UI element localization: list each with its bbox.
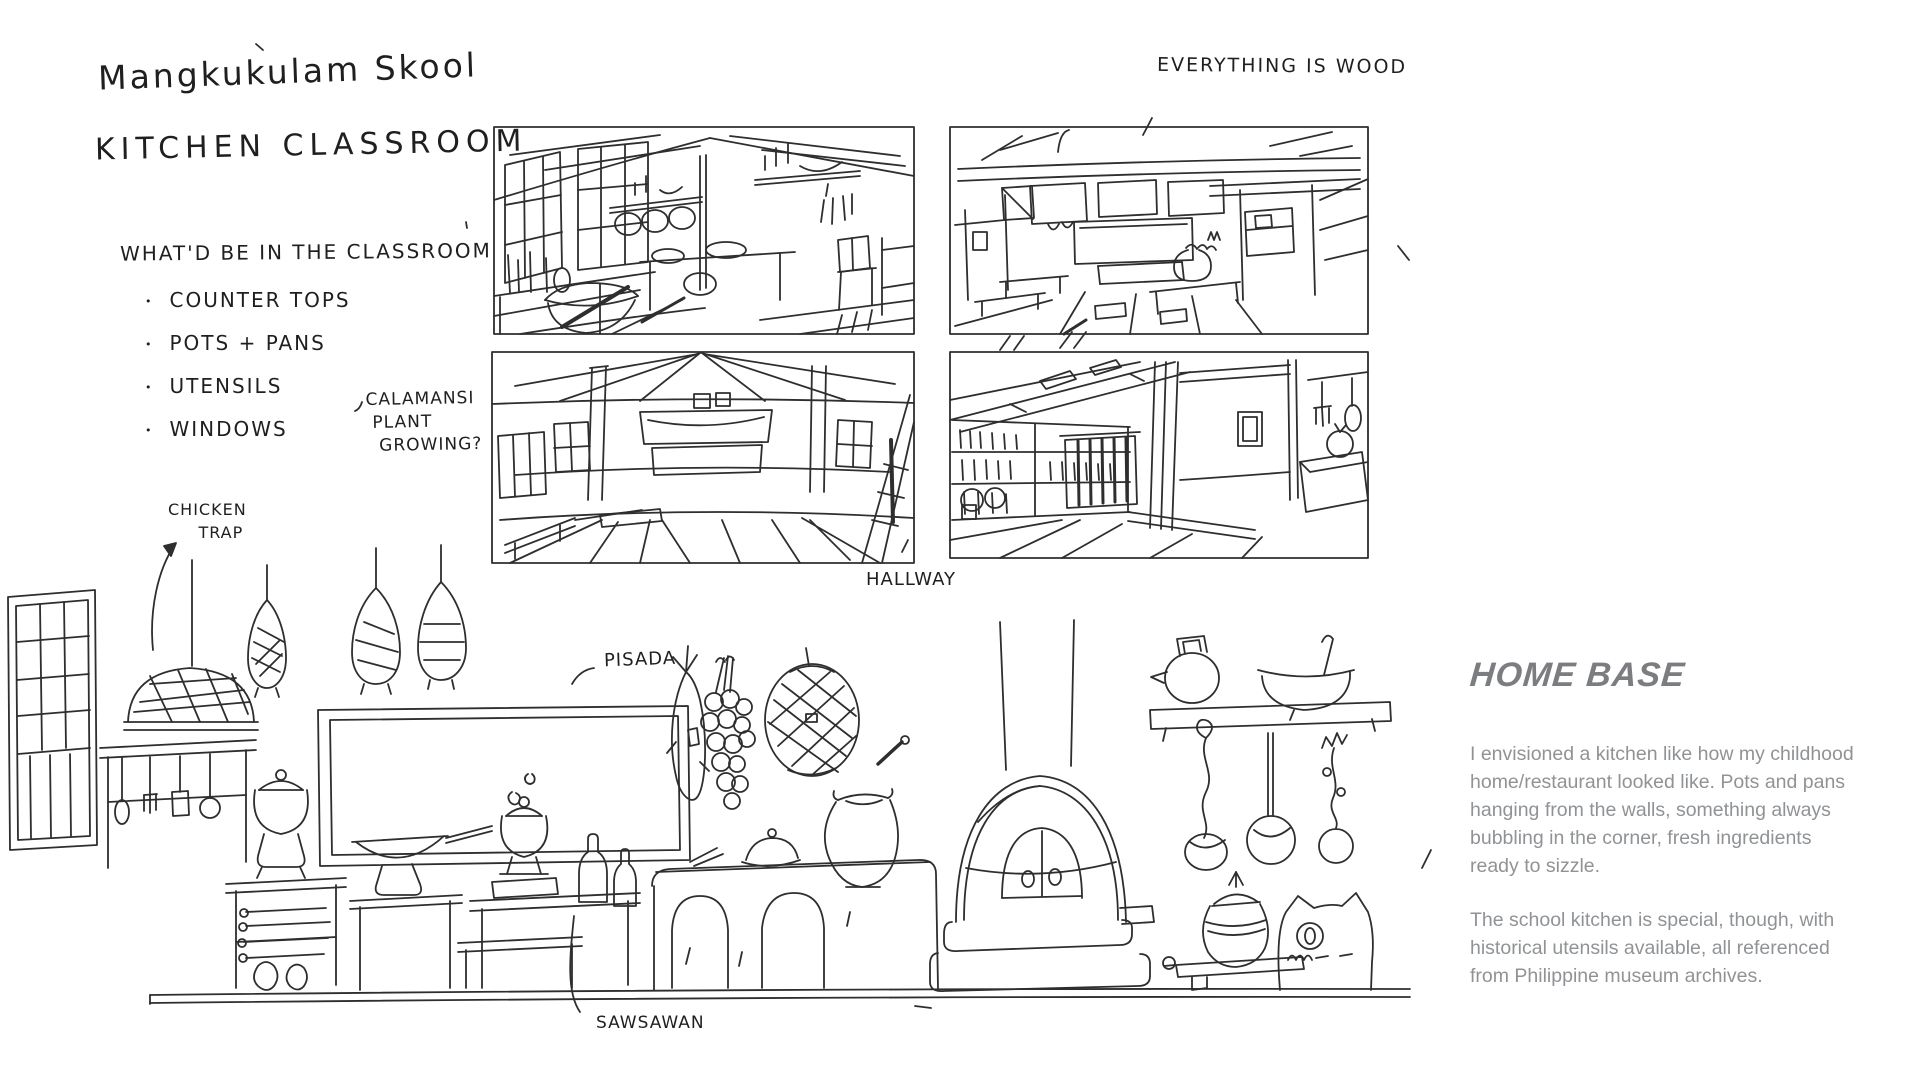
classroom-list: •COUNTER TOPS •POTS + PANS •UTENSILS •WI… (145, 288, 351, 460)
hanging-teardrop-baskets (248, 545, 466, 697)
sawsawan-label: SAWSAWAN (596, 1012, 705, 1035)
bullet-dot: • (145, 424, 154, 437)
list-item-label: UTENSILS (170, 374, 283, 398)
bullet-dot: • (145, 295, 154, 308)
panel-4-sketch (950, 332, 1368, 558)
list-item-label: COUNTER TOPS (170, 288, 351, 312)
home-base-description: I envisioned a kitchen like how my child… (1470, 740, 1862, 1016)
palayok-stand (458, 774, 640, 988)
everything-wood-label: EVERYTHING IS WOOD (1157, 54, 1407, 79)
home-base-paragraph-2: The school kitchen is special, though, w… (1470, 906, 1862, 990)
covered-jar (1163, 872, 1304, 990)
woven-sphere (765, 648, 859, 776)
wok-on-stand (350, 826, 492, 990)
hanging-utensils (1185, 720, 1353, 870)
list-item: •WINDOWS (145, 417, 351, 460)
cat-sack (1278, 893, 1372, 990)
bullet-dot: • (145, 381, 154, 394)
chicken-trap-label: CHICKEN TRAP (168, 498, 247, 544)
classroom-list-heading: WHAT'D BE IN THE CLASSROOM (120, 238, 492, 265)
hanging-dome-basket (124, 560, 258, 730)
home-base-heading: HOME BASE (1468, 656, 1686, 695)
left-window-cabinet (8, 590, 97, 850)
panel-3-sketch (492, 352, 914, 563)
list-item: •UTENSILS (145, 374, 351, 417)
garlic-string (701, 656, 755, 809)
blackboard (318, 668, 690, 866)
chicken-trap-arrow (152, 543, 176, 650)
floor-line (150, 989, 1410, 1008)
hallway-label: HALLWAY (866, 568, 956, 591)
bullet-dot: • (145, 338, 154, 351)
home-base-sketch (8, 543, 1410, 1012)
dome-oven (930, 620, 1154, 991)
sketch-page: { "sketch": { "title_line1": "Mangkukula… (0, 0, 1920, 1080)
calamansi-note: CALAMANSI PLANT GROWING? (365, 387, 482, 458)
list-item-label: WINDOWS (170, 417, 288, 441)
panel-2-sketch (950, 127, 1368, 334)
home-base-paragraph-1: I envisioned a kitchen like how my child… (1470, 740, 1862, 880)
panel-1-sketch (494, 127, 914, 334)
pisada-label: PISADA (604, 647, 677, 673)
list-item: •COUNTER TOPS (145, 288, 351, 331)
right-wall-shelf (1150, 636, 1391, 741)
list-item: •POTS + PANS (145, 331, 351, 374)
list-item-label: POTS + PANS (170, 331, 326, 355)
utensil-shelf (100, 740, 256, 868)
pot-on-kalan (226, 770, 346, 990)
arched-counter (652, 829, 938, 990)
